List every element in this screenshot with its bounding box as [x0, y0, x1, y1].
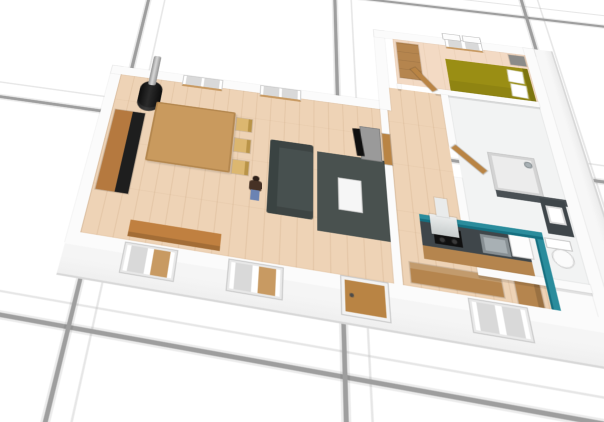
person-legs: [250, 189, 260, 201]
dining-chair-3[interactable]: [232, 159, 249, 175]
person-figure[interactable]: [248, 175, 263, 202]
coffee-table[interactable]: [339, 178, 362, 212]
dining-chair-1[interactable]: [236, 118, 253, 132]
house: [65, 65, 604, 332]
bedroom-south-wall-left: [397, 84, 401, 90]
dining-chair-2[interactable]: [234, 138, 251, 153]
tile-floor-background: [0, 0, 604, 422]
dining-table[interactable]: [145, 102, 236, 173]
front-door-handle: [349, 293, 354, 298]
tv-stand[interactable]: [359, 126, 382, 162]
wing-west-wall: [374, 30, 391, 111]
sofa[interactable]: [266, 139, 313, 220]
floor-plan-3d-view[interactable]: [0, 0, 604, 422]
